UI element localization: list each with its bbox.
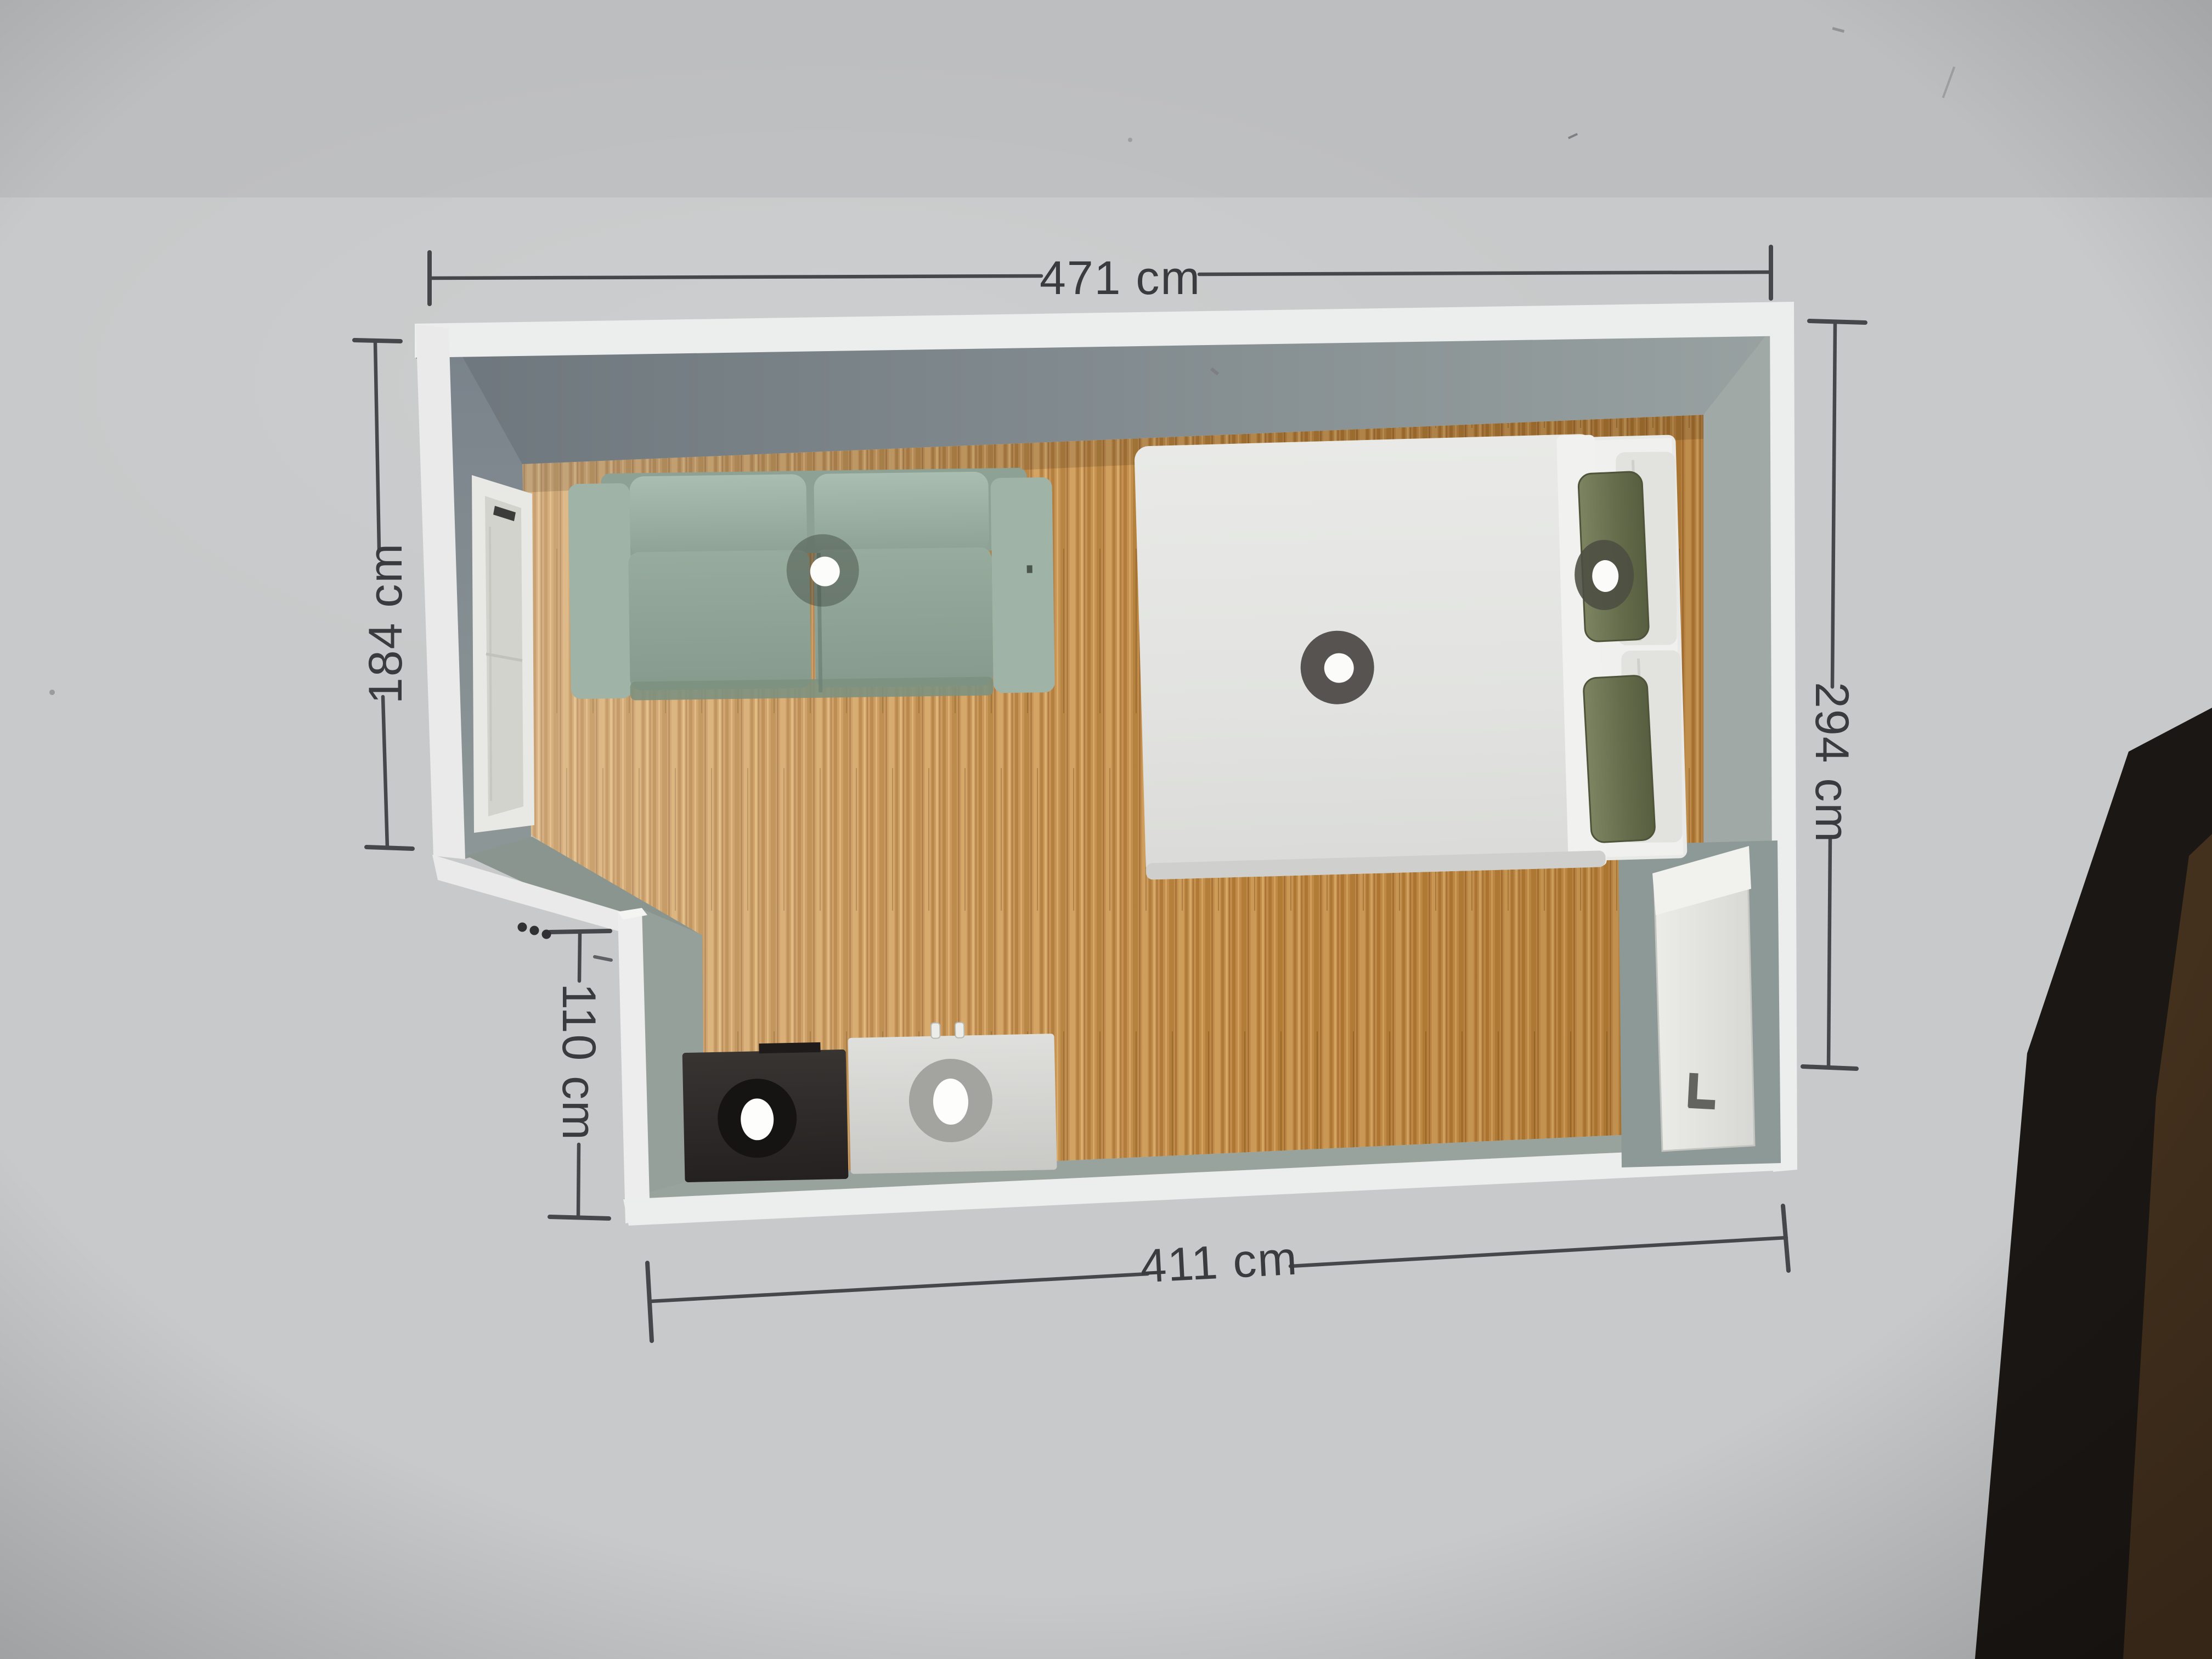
floorplan-canvas[interactable]: 471 cm 184 cm 294 cm 110 cm xyxy=(0,0,2212,1659)
photo-vignette xyxy=(0,0,2212,1659)
screen-photo: 471 cm 184 cm 294 cm 110 cm xyxy=(0,0,2212,1659)
